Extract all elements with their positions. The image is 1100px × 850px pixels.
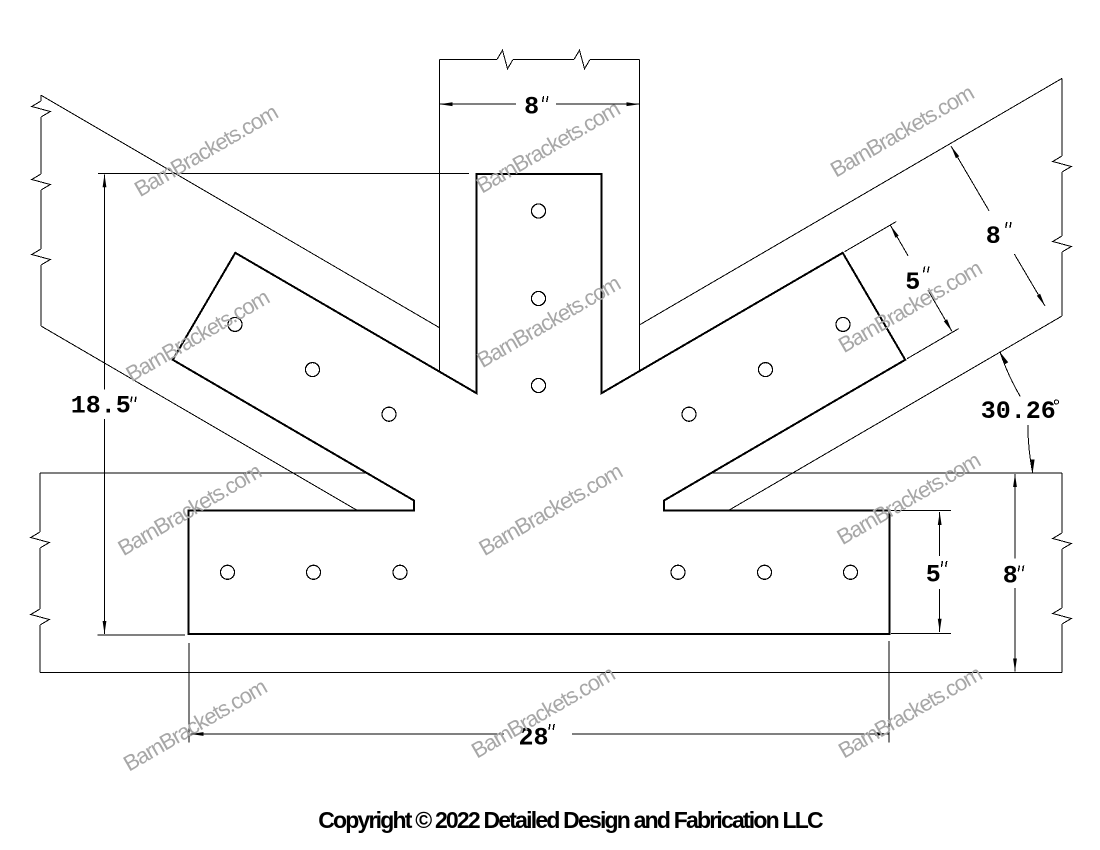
svg-text:8: 8 [524,92,539,121]
svg-text:8: 8 [986,222,1001,251]
svg-text:18.5: 18.5 [71,392,131,421]
svg-text:8: 8 [1003,561,1018,590]
svg-text:5: 5 [926,560,941,589]
svg-text:Copyright © 2022 Detailed Desi: Copyright © 2022 Detailed Design and Fab… [318,807,823,833]
svg-text:30.26: 30.26 [981,397,1056,426]
